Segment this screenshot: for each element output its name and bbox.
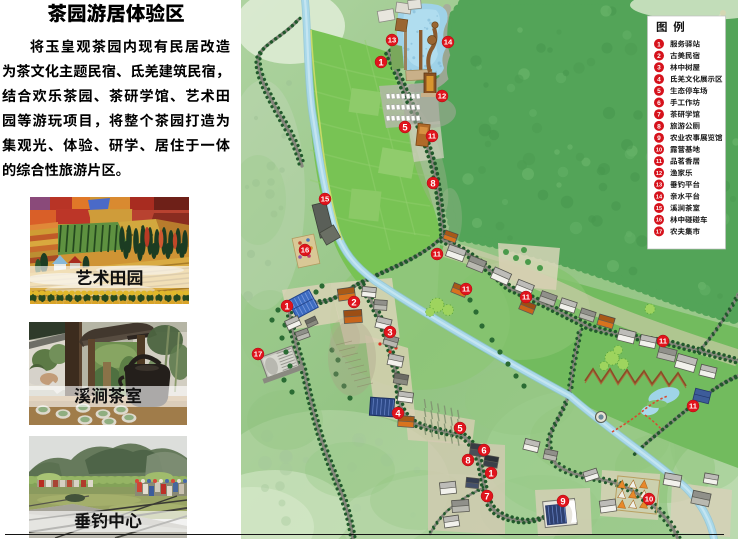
- svg-text:9: 9: [657, 135, 661, 142]
- svg-text:10: 10: [656, 147, 662, 153]
- svg-text:15: 15: [656, 206, 662, 212]
- svg-text:2: 2: [657, 53, 661, 60]
- svg-text:11: 11: [522, 293, 531, 302]
- svg-text:8: 8: [465, 454, 470, 465]
- svg-text:5: 5: [657, 88, 661, 95]
- svg-text:12: 12: [438, 92, 446, 101]
- svg-text:1: 1: [488, 467, 493, 478]
- svg-text:17: 17: [656, 229, 662, 235]
- svg-text:8: 8: [657, 123, 661, 130]
- svg-text:2: 2: [351, 296, 356, 307]
- svg-text:11: 11: [428, 132, 437, 141]
- svg-text:6: 6: [481, 444, 486, 455]
- svg-text:1: 1: [378, 56, 383, 67]
- svg-text:4: 4: [395, 407, 401, 418]
- svg-text:5: 5: [457, 422, 462, 433]
- svg-text:8: 8: [430, 177, 435, 188]
- svg-text:9: 9: [560, 495, 565, 506]
- svg-text:4: 4: [657, 76, 661, 83]
- svg-text:12: 12: [656, 171, 662, 177]
- svg-text:11: 11: [462, 285, 471, 294]
- svg-text:16: 16: [656, 218, 662, 224]
- svg-text:1: 1: [284, 300, 289, 311]
- svg-text:3: 3: [387, 326, 392, 337]
- svg-text:3: 3: [657, 65, 661, 72]
- svg-text:11: 11: [659, 337, 668, 346]
- svg-text:11: 11: [656, 159, 662, 165]
- svg-text:11: 11: [689, 402, 698, 411]
- svg-text:10: 10: [645, 495, 653, 504]
- svg-text:14: 14: [656, 194, 663, 200]
- svg-text:15: 15: [321, 195, 330, 204]
- svg-text:13: 13: [388, 36, 396, 45]
- svg-text:6: 6: [657, 100, 661, 107]
- svg-text:7: 7: [657, 112, 661, 119]
- svg-text:11: 11: [433, 250, 442, 259]
- svg-text:16: 16: [301, 246, 309, 255]
- svg-text:1: 1: [657, 41, 661, 48]
- svg-text:17: 17: [254, 350, 262, 359]
- svg-text:13: 13: [656, 183, 662, 189]
- svg-text:14: 14: [444, 38, 453, 47]
- svg-text:7: 7: [484, 490, 489, 501]
- svg-text:5: 5: [402, 121, 407, 132]
